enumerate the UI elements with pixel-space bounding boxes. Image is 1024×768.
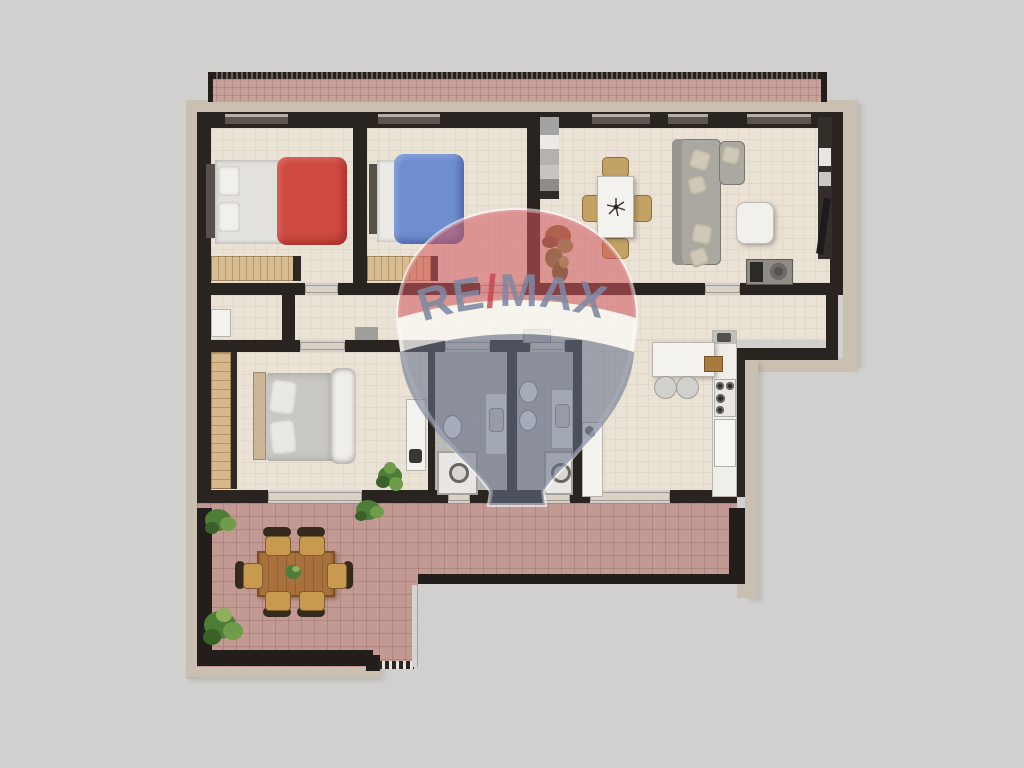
bed2-dresser-edge [431,256,438,281]
media-wall-slot1 [819,148,831,166]
master-bed-pillow-1 [268,379,298,416]
wall-kitchen-left [573,347,582,497]
cooktop-burner-2 [726,382,734,390]
terrace-railing-dashed [378,661,414,669]
entry-wardrobe [540,117,559,199]
dining-chair-top [602,157,629,178]
bath1-toilet [443,415,462,439]
kitchen-oven [714,419,736,467]
door-bathroom2 [530,342,565,350]
door-master-bedroom [300,342,345,350]
terrace-plant-mid [352,496,386,528]
entry-wardrobe-seg5 [540,179,559,191]
outer-wall-right [843,100,858,366]
kitchen-wall-faucet [585,426,594,435]
wall-corridor-right-bottom [737,348,838,360]
wall-bed2-entry [527,112,540,285]
terrace-chair-right [327,563,347,589]
bed1-red-blanket [277,157,347,245]
wall-corridor-stub [282,288,295,340]
entry-plant [540,222,576,284]
wall-bathrooms-divider [507,347,517,497]
wall-corridor-bottom-a [197,340,300,352]
wall-corridor-top-b [338,283,480,295]
terrace-chair-bottom1 [265,591,291,611]
outer-wall-corridor-cap [745,358,858,372]
dining-chair-bottom [602,238,629,259]
shoe-cabinet [211,309,231,337]
entry-wardrobe-seg3 [540,149,559,165]
bath1-sink [489,408,504,432]
french-door-master [268,492,362,501]
bed2-dresser [367,256,431,281]
kitchen-stool-2 [676,376,699,399]
chandelier-icon [605,196,627,218]
master-wardrobe [211,352,231,489]
terrace-chair-top1 [265,536,291,556]
master-plant [374,458,406,498]
cooktop-burner-4 [716,406,724,414]
top-terrace-railing [208,72,826,79]
sofa-pillow-5 [720,144,741,165]
wall-corridor-top-c [523,283,705,295]
top-terrace-right-cap [821,72,827,102]
kitchen-cutting-board [704,356,723,372]
door-bedroom1 [305,285,338,293]
outer-wall-terrace-bottom-cap [737,583,758,598]
master-wardrobe-edge [231,352,237,489]
floor-plan-canvas: RE/MAX [0,0,1024,768]
cooktop-burner-3 [716,394,725,403]
terrace-railing-shallow-right [729,508,745,584]
bed1-headboard [206,164,215,238]
corridor-mat [355,327,378,340]
window-bedroom2 [378,114,440,124]
terrace-chair-bottom2 [299,591,325,611]
bath2-shower-head [551,463,571,483]
ottoman [736,202,774,244]
wall-kitchen-right [737,352,745,497]
window-living-2 [668,114,708,124]
entry-wardrobe-seg6 [540,191,559,199]
entry-wardrobe-seg4 [540,165,559,179]
entry-wardrobe-seg2 [540,135,559,149]
terrace-chair-left [243,563,263,589]
bed1-dresser-edge [293,256,301,281]
bed2-headboard [369,164,377,234]
window-bedroom1 [225,114,288,124]
wall-left-lower [197,290,211,503]
master-bed-throw [330,368,356,464]
door-living-corridor [705,285,740,293]
master-desk-stool [409,449,422,463]
bath1-toilet-tank [435,414,443,438]
bath1-shower-head [449,463,469,483]
entry-wardrobe-seg1 [540,117,559,135]
bath2-bidet [519,410,537,431]
outer-wall-terrace-right [745,360,758,598]
media-wall-slot2 [819,172,831,186]
kitchen-sink-bowl [717,333,731,342]
bed1-pillow-bottom [218,202,240,232]
wall-corridor-right [826,292,838,360]
door-bathroom1 [445,342,490,350]
sofa-pillow-3 [690,222,713,245]
master-bed-headboard [253,372,266,460]
cooktop-burner-1 [716,382,724,390]
master-bed-pillow-2 [268,419,297,456]
bed1-dresser [211,256,299,281]
top-terrace-floor [208,79,826,102]
terrace-plant-bottom-left [200,603,248,653]
terrace-chair-top2 [299,536,325,556]
window-living-3 [747,114,811,124]
dining-chair-right [632,195,652,222]
window-living-1 [592,114,650,124]
terrace-railing-shallow-bottom [418,574,737,584]
bath2-sink [555,404,570,428]
door-bedroom2 [480,285,523,293]
terrace-divider [412,585,417,667]
bath2-toilet [519,381,538,403]
wall-bed1-bed2 [353,112,367,285]
terrace-plant-top-left [202,506,238,538]
kitchen-stool-1 [654,376,677,399]
corridor-cabinet [523,329,551,343]
terrace-floor-shallow [418,503,737,583]
wall-master-right [428,347,435,497]
tv-cabinet-tv [750,262,763,282]
bed1-pillow-top [218,166,240,196]
wall-bottom-a [197,490,268,503]
top-terrace-left-cap [208,72,213,102]
tv-cabinet-speaker [770,263,787,280]
terrace-table-plant [283,562,303,582]
wall-bottom-c [470,490,543,503]
bed2-blue-blanket [394,154,464,244]
